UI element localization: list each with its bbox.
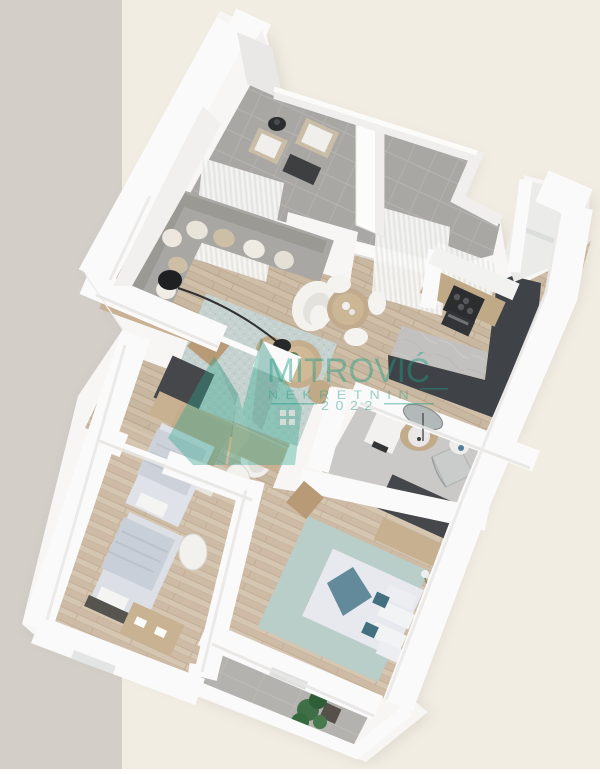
svg-text:2022: 2022 (321, 398, 379, 413)
svg-text:MITROVIĆ: MITROVIĆ (267, 352, 430, 390)
